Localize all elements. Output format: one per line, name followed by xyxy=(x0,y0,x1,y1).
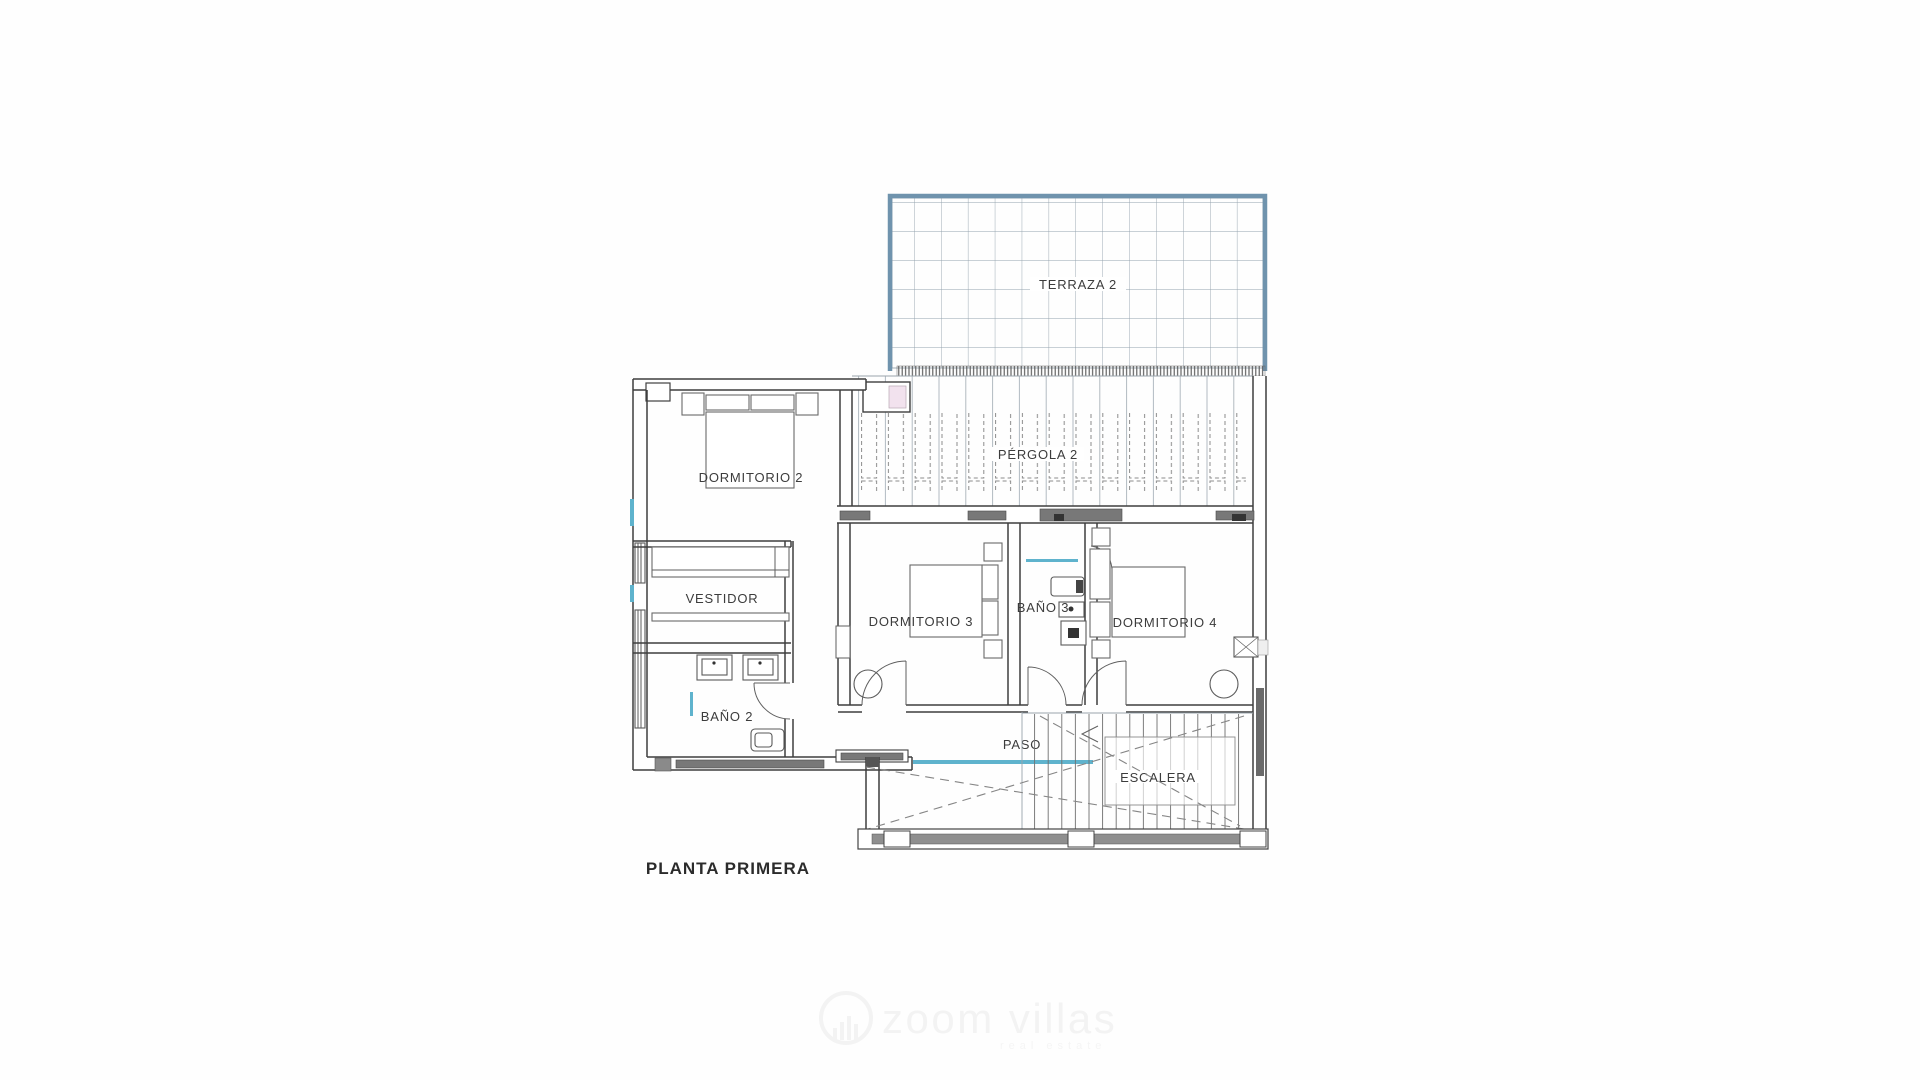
window-sill-cyan xyxy=(630,585,634,602)
bathroom-3-label: BAÑO 3 xyxy=(1017,600,1069,615)
pillow xyxy=(982,601,998,635)
wall-cap-block xyxy=(866,757,879,767)
floor-plan-page: TERRAZA 2 PÉRGOLA 2 xyxy=(0,0,1920,1080)
parapet-post xyxy=(884,831,910,847)
pouf-icon xyxy=(854,670,882,698)
bed-icon xyxy=(1090,528,1185,658)
watermark: zoom villas real estate xyxy=(821,993,1117,1052)
watermark-logo-circle-icon xyxy=(821,993,871,1043)
toilet-icon xyxy=(1051,577,1084,596)
bathroom-2-label: BAÑO 2 xyxy=(701,709,753,724)
sink-tap xyxy=(758,661,761,664)
nightstand xyxy=(682,393,704,415)
shower-screen-cyan xyxy=(1026,559,1078,562)
sink-basin xyxy=(748,659,773,675)
sink-basin xyxy=(702,659,727,675)
door-arc xyxy=(1028,667,1066,705)
bedroom-2-label: DORMITORIO 2 xyxy=(699,470,804,485)
parapet-post xyxy=(1240,831,1266,847)
wall-vestidor-bano2 xyxy=(633,643,791,653)
logo-bar xyxy=(854,1024,858,1040)
logo-bar xyxy=(833,1028,837,1040)
nightstand xyxy=(984,640,1002,658)
wardrobe-top xyxy=(652,547,789,577)
window-bottom xyxy=(676,760,824,768)
dressing-room-label: VESTIDOR xyxy=(686,591,759,606)
nightstand xyxy=(1092,640,1110,658)
parapet-rail xyxy=(872,834,1252,844)
sink-icon xyxy=(697,655,732,680)
window-louver-left-1 xyxy=(635,543,645,583)
window-vent-glyph xyxy=(1232,514,1246,521)
window-dorm3-right xyxy=(968,511,1006,520)
logo-bar xyxy=(847,1016,851,1040)
cabinet-detail xyxy=(1068,628,1079,638)
staircase-label: ESCALERA xyxy=(1120,770,1196,785)
bedroom-2: DORMITORIO 2 xyxy=(682,393,818,488)
window-louver-left-2 xyxy=(635,610,645,728)
wall-right-upper xyxy=(840,390,852,506)
pouf-icon xyxy=(1210,670,1238,698)
bedroom-4: DORMITORIO 4 xyxy=(1082,528,1268,705)
pillar-icon xyxy=(1234,637,1268,657)
dressing-room: VESTIDOR xyxy=(652,547,789,621)
wall-core xyxy=(838,523,850,705)
corner-pillar xyxy=(646,383,670,401)
plan-title: PLANTA PRIMERA xyxy=(646,859,810,878)
sink-tap xyxy=(1069,607,1074,612)
bedroom-3-label: DORMITORIO 3 xyxy=(869,614,974,629)
window-vent-glyph xyxy=(1054,514,1064,521)
window-right-wall xyxy=(1256,688,1264,776)
pillow xyxy=(1090,602,1110,637)
cabinet-icon xyxy=(1061,621,1086,645)
nightstand xyxy=(796,393,818,415)
bathroom-2: BAÑO 2 xyxy=(690,655,790,751)
terrace-edge-hatch xyxy=(897,366,1265,376)
wardrobe-bottom xyxy=(652,613,789,621)
corner-block xyxy=(655,758,671,771)
pillow xyxy=(1090,549,1110,599)
watermark-logo-bars-icon xyxy=(833,1016,858,1040)
bed-icon xyxy=(910,543,1002,658)
pergola-label: PÉRGOLA 2 xyxy=(998,447,1078,462)
shower-screen-cyan xyxy=(690,692,693,716)
floor-plan-drawing: TERRAZA 2 PÉRGOLA 2 xyxy=(0,0,1920,1080)
bedroom-4-label: DORMITORIO 4 xyxy=(1113,615,1218,630)
window-bano3 xyxy=(1040,509,1122,521)
pillar-side xyxy=(1258,640,1268,655)
watermark-brand-text: zoom villas xyxy=(882,995,1117,1042)
toilet-icon xyxy=(751,729,784,751)
window-frame xyxy=(635,610,645,728)
door-leaf-dorm3 xyxy=(836,626,850,658)
nightstand xyxy=(1092,528,1110,546)
pillow xyxy=(982,565,998,599)
wall-paso-top xyxy=(838,705,1253,712)
terrace-label: TERRAZA 2 xyxy=(1039,277,1117,292)
sink-icon xyxy=(743,655,778,680)
toilet-seat xyxy=(755,733,772,747)
pergola: PÉRGOLA 2 xyxy=(852,376,1266,506)
nightstand xyxy=(984,543,1002,561)
window-sill-cyan xyxy=(630,499,634,526)
wardrobe-icon xyxy=(652,547,789,621)
window-frame xyxy=(635,543,645,583)
watermark-tagline-text: real estate xyxy=(1000,1040,1106,1052)
wall-dorm2-vestidor xyxy=(633,541,791,547)
pillow xyxy=(751,395,794,410)
staircase: ESCALERA xyxy=(1022,712,1253,830)
logo-bar xyxy=(840,1022,844,1040)
terrace: TERRAZA 2 xyxy=(890,196,1265,376)
sink-tap xyxy=(712,661,715,664)
pergola-left-pillar-pink xyxy=(889,386,906,408)
pillow xyxy=(706,395,749,410)
door-arc xyxy=(754,683,790,719)
parapet-post xyxy=(1068,831,1094,847)
bedroom-3: DORMITORIO 3 xyxy=(854,543,1002,705)
toilet-cistern xyxy=(1076,580,1083,593)
window-dorm3-left xyxy=(840,511,870,520)
balcony-parapet xyxy=(858,829,1268,849)
